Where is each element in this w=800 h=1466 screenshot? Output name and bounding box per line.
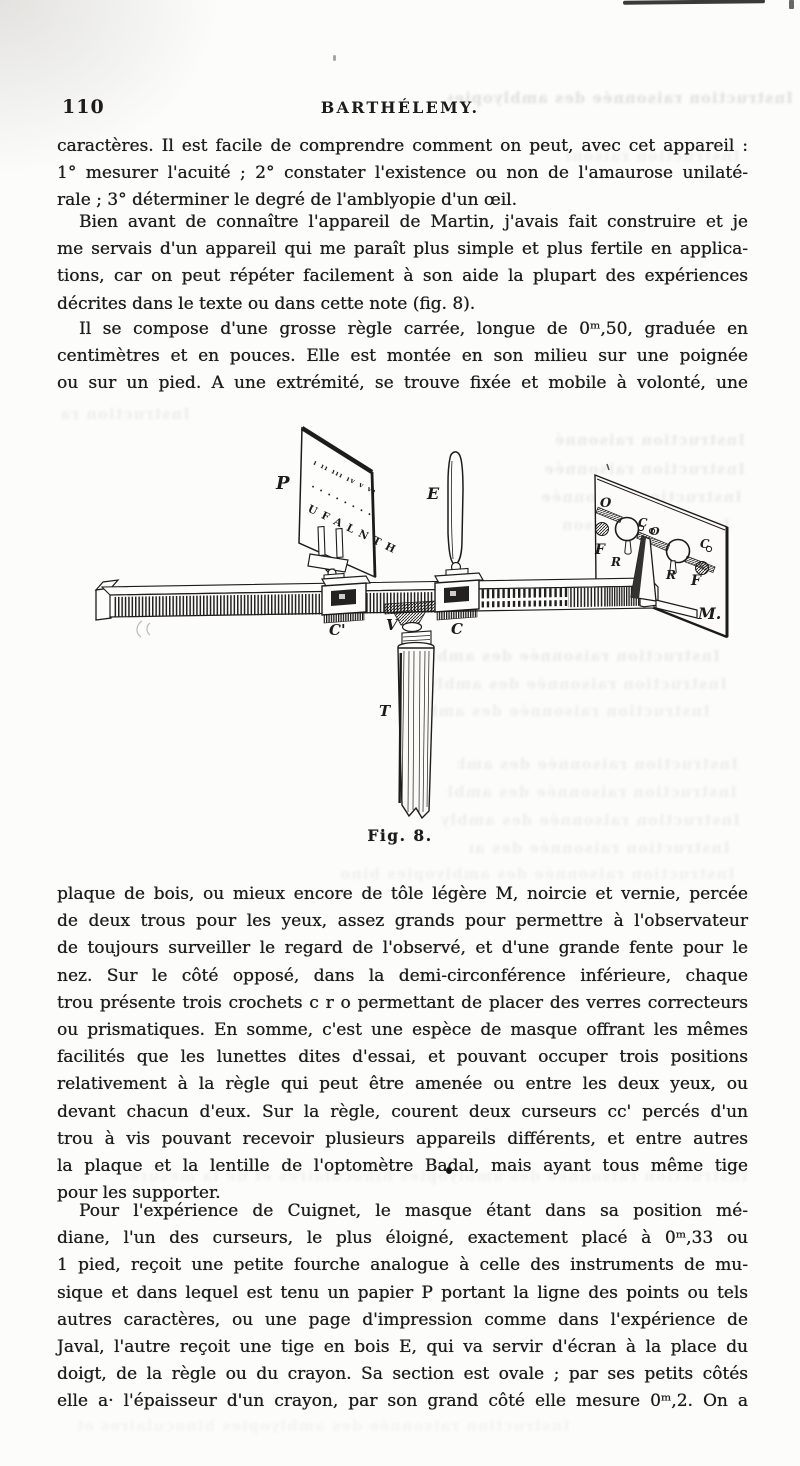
cursor-window bbox=[444, 586, 469, 603]
text-line: de deux trous pour les yeux, assez grand… bbox=[57, 908, 748, 935]
figure-label-plate: P bbox=[275, 473, 290, 494]
ruler-graduations bbox=[113, 594, 320, 617]
paragraph-1: caractères. Il est facile de comprendre … bbox=[57, 133, 748, 215]
text-line: autres caractères, ou une page d'impress… bbox=[57, 1307, 748, 1334]
text-line: centimètres et en pouces. Elle est monté… bbox=[57, 343, 748, 370]
figure-label-pivot: V bbox=[386, 616, 399, 634]
paragraph-3: Il se compose d'une grosse règle carrée,… bbox=[57, 316, 748, 398]
text-line: Pour l'expérience de Cuignet, le masque … bbox=[57, 1198, 748, 1225]
fork-prong bbox=[318, 527, 325, 556]
figure-label-cursor-right: C bbox=[451, 620, 463, 638]
figure-label-cursor-left: C' bbox=[329, 621, 346, 639]
text-line: Il se compose d'une grosse règle carrée,… bbox=[57, 316, 748, 343]
figure-caption: Fig. 8. bbox=[50, 826, 750, 845]
fork-prong bbox=[336, 529, 343, 558]
text-line: trou à vis pouvant recevoir plusieurs ap… bbox=[57, 1126, 748, 1153]
text-line: sique et dans lequel est tenu un papier … bbox=[57, 1280, 748, 1307]
text-line: me servais d'un appareil qui me paraît p… bbox=[57, 236, 748, 263]
lens-disc-left bbox=[596, 523, 609, 536]
mount-knob bbox=[403, 623, 422, 632]
central-mount: V T bbox=[379, 601, 435, 818]
running-title: BARTHÉLEMY. bbox=[0, 98, 800, 117]
cursor-left: C' bbox=[322, 574, 370, 640]
text-line: elle a· l'épaisseur d'un crayon, par son… bbox=[57, 1388, 748, 1415]
figure-label-mask: M. bbox=[697, 604, 721, 623]
ruler-graduations bbox=[568, 587, 606, 607]
figure-label-r-left: R bbox=[610, 555, 621, 569]
text-line: Bien avant de connaître l'appareil de Ma… bbox=[57, 209, 748, 236]
stray-mark bbox=[607, 464, 609, 470]
graduated-ruler bbox=[96, 578, 658, 637]
bleedthrough-text: Instruction raisonnée des amblyopies bin… bbox=[70, 1418, 570, 1437]
text-line: facilités que les lunettes dites d'essai… bbox=[57, 1044, 748, 1071]
text-line: ou prismatiques. En somme, c'est une esp… bbox=[57, 1017, 748, 1044]
stray-ink-mark bbox=[333, 55, 336, 61]
faint-smudge bbox=[137, 621, 150, 637]
paragraph-2: Bien avant de connaître l'appareil de Ma… bbox=[57, 209, 748, 318]
text-line: décrites dans le texte ou dans cette not… bbox=[57, 291, 748, 318]
text-line: Javal, l'autre reçoit une tige en bois E… bbox=[57, 1334, 748, 1361]
figure-label-r-right: R bbox=[665, 568, 676, 582]
scan-artifact-streak bbox=[623, 0, 765, 5]
ruler-graduations bbox=[480, 588, 568, 599]
paragraph-5: Pour l'expérience de Cuignet, le masque … bbox=[57, 1198, 748, 1416]
screen-rod: E bbox=[426, 452, 463, 572]
text-line: diane, l'un des curseurs, le plus éloign… bbox=[57, 1225, 748, 1252]
figure-label-c-mid: C bbox=[638, 516, 648, 530]
mask-plate: O F R C O C R F M. bbox=[594, 464, 727, 637]
text-line: 1° mesurer l'acuité ; 2° constater l'exi… bbox=[57, 160, 748, 187]
text-line: relativement à la règle qui peut être am… bbox=[57, 1071, 748, 1098]
figure-label-o-left: O bbox=[600, 496, 612, 511]
text-line: tions, car on peut répéter facilement à … bbox=[57, 263, 748, 290]
text-line: caractères. Il est facile de comprendre … bbox=[57, 133, 748, 160]
cursor-right: C bbox=[435, 569, 483, 639]
figure-label-o-mid: O bbox=[650, 525, 660, 538]
text-line: ou sur un pied. A une extrémité, se trou… bbox=[57, 370, 748, 397]
text-line: nez. Sur le côté opposé, dans la demi-ci… bbox=[57, 963, 748, 990]
figure-8-engraving: O F R C O C R F M. ı ıı ııı ıv v vı · · … bbox=[50, 415, 750, 835]
text-line: trou présente trois crochets c r o perme… bbox=[57, 990, 748, 1017]
text-line: doigt, de la règle ou du crayon. Sa sect… bbox=[57, 1361, 748, 1388]
text-line: 1 pied, reçoit une petite fourche analog… bbox=[57, 1252, 748, 1279]
figure-label-f-left: F bbox=[594, 542, 606, 558]
paragraph-4: plaque de bois, ou mieux encore de tôle … bbox=[57, 881, 748, 1207]
text-line: devant chacun d'eux. Sur la règle, coure… bbox=[57, 1099, 748, 1126]
text-line: la plaque et la lentille de l'optomètre … bbox=[57, 1153, 748, 1180]
figure-label-handle: T bbox=[379, 702, 392, 720]
figure-label-f-right: F bbox=[690, 573, 702, 589]
hook-peg-left bbox=[625, 541, 631, 554]
scan-artifact-tick bbox=[789, 0, 794, 9]
book-page: Instruction raisonnée des amblyopies bin… bbox=[0, 0, 800, 1466]
text-line: plaque de bois, ou mieux encore de tôle … bbox=[57, 881, 748, 908]
text-line: de toujours surveiller le regard de l'ob… bbox=[57, 935, 748, 962]
figure-label-rod: E bbox=[426, 484, 440, 503]
figure-label-c-right: C bbox=[700, 537, 710, 551]
test-card: ı ıı ııı ıv v vı · · · · · · · · U F A L… bbox=[275, 428, 398, 579]
